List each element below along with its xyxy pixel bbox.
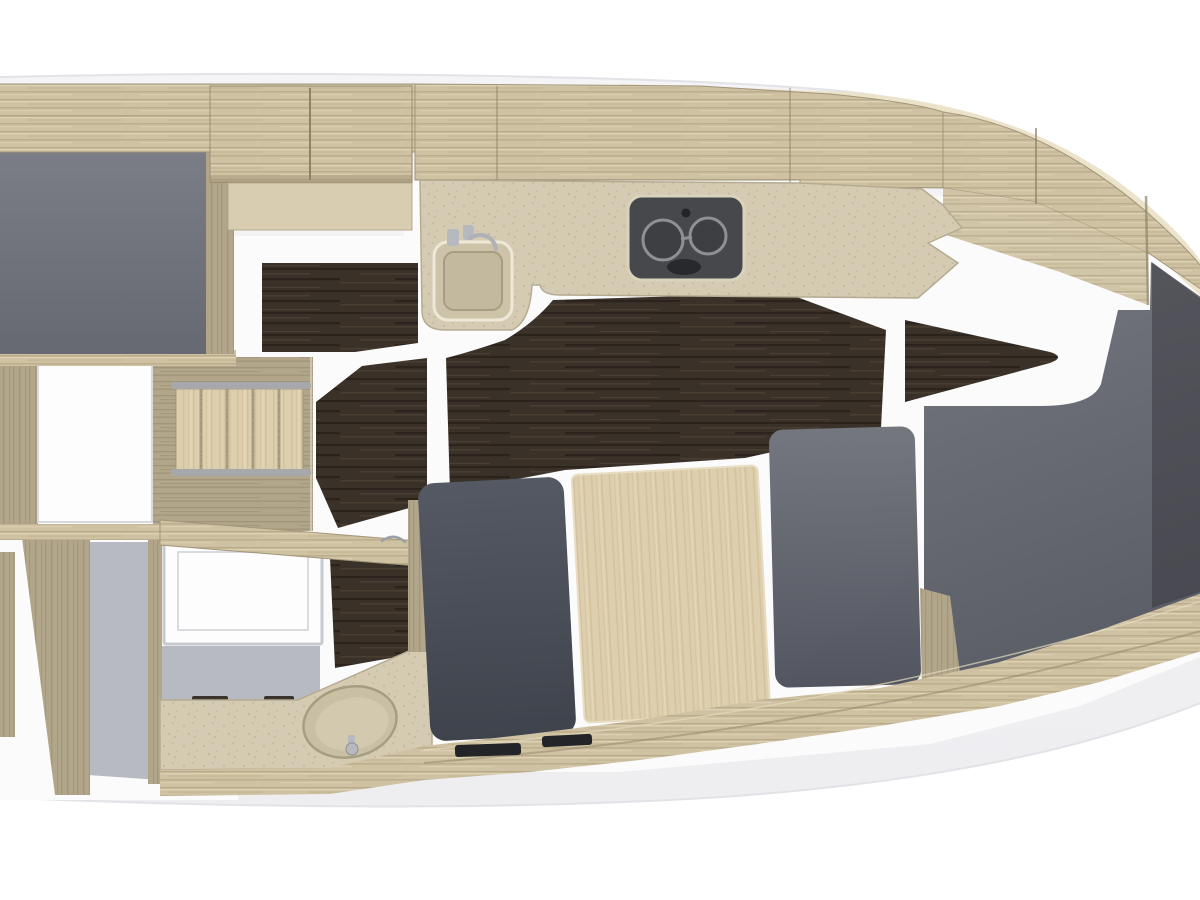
forward-shelf: [228, 183, 412, 230]
stair-tread-5: [280, 389, 303, 470]
stair-rail-top: [171, 382, 311, 389]
forward-bulkhead-strip: [0, 524, 165, 540]
galley-upper-cabinet-band: [415, 84, 943, 188]
companionway-stairs: [171, 382, 311, 476]
settee-forward-cushion: [0, 148, 212, 354]
forward-berth-mattress: [38, 362, 152, 522]
stove-knob: [682, 209, 691, 218]
seatback-port-panel: [417, 476, 576, 741]
stove-burner-left: [643, 220, 683, 260]
forward-berth-left-wall: [0, 358, 38, 528]
vanity-faucet: [346, 743, 358, 755]
forward-wardrobe-shadow: [210, 175, 412, 183]
vent-slot-1: [455, 743, 521, 757]
berth-aft-small-cushion: [769, 426, 922, 688]
stair-rail-bottom: [171, 469, 311, 476]
corridor-floor-dark: [262, 263, 418, 352]
stair-tread-3: [228, 389, 252, 470]
sink-faucet-handle-1: [447, 229, 459, 246]
floorplan-canvas: [0, 0, 1200, 900]
salon-table-panel: [572, 465, 771, 722]
stove-grate-shadow: [667, 259, 701, 275]
head-outer-wall-strip: [0, 552, 15, 737]
aft-bulkhead-shadow: [1152, 262, 1200, 608]
stove-burner-right: [690, 218, 726, 254]
stove-burner-bridge: [681, 237, 692, 239]
stair-tread-2: [202, 389, 226, 470]
stair-tread-4: [254, 389, 278, 470]
yacht-floorplan-render: [0, 0, 1200, 900]
sink-basin-inner: [444, 252, 502, 310]
stair-tread-1: [176, 389, 200, 470]
